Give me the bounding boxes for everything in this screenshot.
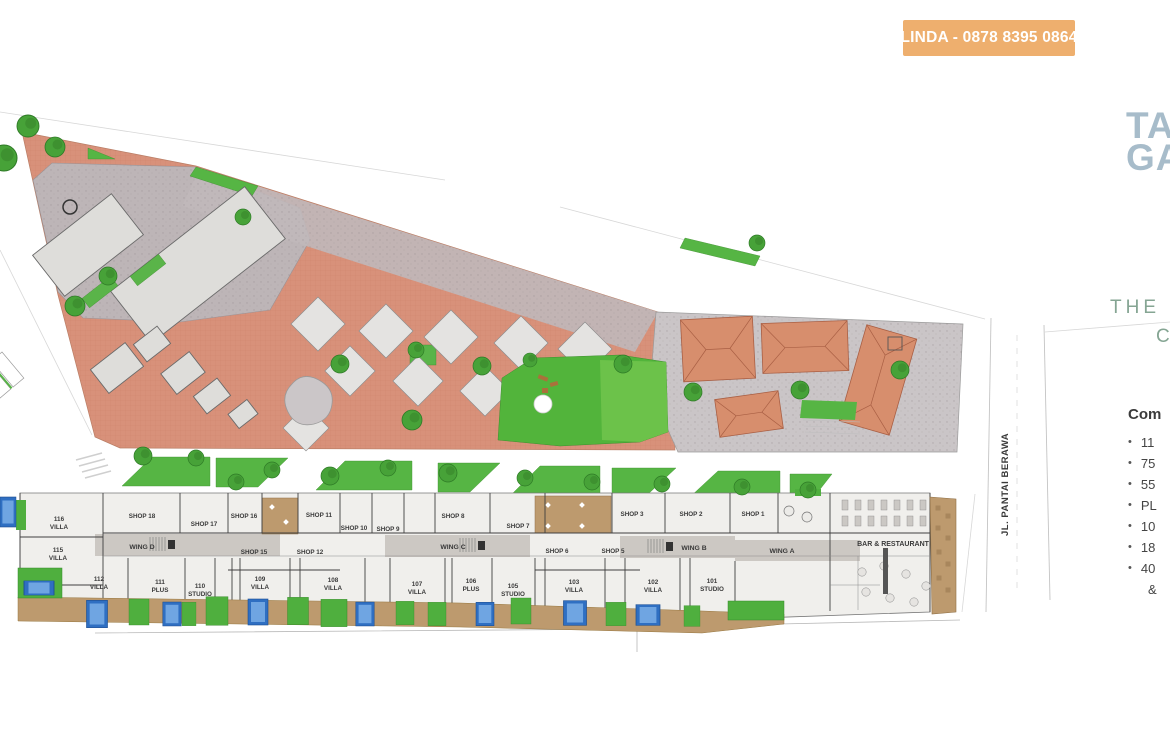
summary-item: 55	[1128, 474, 1161, 495]
unit-110-type: STUDIO	[188, 591, 212, 598]
unit-105-num: 105	[508, 583, 519, 590]
summary-list: Com 11 75 55 PL 10 18 40 &	[1128, 406, 1161, 600]
summary-item: 11	[1128, 432, 1161, 453]
unit-108-num: 108	[328, 577, 339, 584]
shop-9-label: SHOP 9	[377, 526, 400, 533]
contact-text: LINDA - 0878 8395 0864	[901, 29, 1078, 47]
logo-line2: GA	[1126, 142, 1170, 174]
unit-101-type: STUDIO	[700, 586, 724, 593]
summary-item: PL	[1128, 495, 1161, 516]
unit-107-num: 107	[412, 581, 423, 588]
shop-10-label: SHOP 10	[341, 525, 368, 532]
unit-102-num: 102	[648, 579, 659, 586]
restaurant-deck	[930, 497, 956, 614]
unit-116-num: 116	[54, 516, 65, 523]
wing-b-label: WING B	[681, 545, 706, 552]
unit-109-num: 109	[255, 576, 266, 583]
shop-1-label: SHOP 1	[742, 511, 765, 518]
wing-a-label: WING A	[769, 548, 794, 555]
contact-badge: LINDA - 0878 8395 0864	[903, 20, 1075, 56]
shop-6-label: SHOP 6	[546, 548, 569, 555]
summary-item: 40	[1128, 558, 1161, 579]
road-label: JL. PANTAI BERAWA	[1000, 433, 1011, 536]
brand-tagline: THE	[1110, 297, 1160, 319]
summary-item: 10	[1128, 516, 1161, 537]
shop-3-label: SHOP 3	[621, 511, 644, 518]
unit-115-num: 115	[53, 547, 64, 554]
wing-d-label: WING D	[129, 544, 154, 551]
unit-111-num: 111	[155, 579, 165, 586]
shop-18-label: SHOP 18	[129, 513, 156, 520]
lawn-circle	[534, 395, 552, 413]
shop-15-label: SHOP 15	[241, 549, 268, 556]
road-band-greens	[122, 457, 832, 497]
crosswalk	[76, 453, 111, 478]
unit-106-type: PLUS	[463, 586, 480, 593]
shop-11-label: SHOP 11	[306, 512, 333, 519]
unit-107-type: VILLA	[408, 589, 427, 596]
shop-7-label: SHOP 7	[507, 523, 530, 530]
flyer-page: JL. PANTAI BERAWA SHOP 18 SHOP 17 SHOP 1…	[0, 0, 1170, 738]
wing-c-label: WING C	[440, 544, 465, 551]
unit-103-num: 103	[569, 579, 580, 586]
unit-116-type: VILLA	[50, 524, 69, 531]
unit-111-type: PLUS	[152, 587, 169, 594]
side-road	[986, 318, 1050, 612]
summary-item: 18	[1128, 537, 1161, 558]
unit-109-type: VILLA	[251, 584, 270, 591]
site-plan: JL. PANTAI BERAWA SHOP 18 SHOP 17 SHOP 1…	[0, 0, 1170, 738]
shop-16-label: SHOP 16	[231, 513, 258, 520]
unit-106-num: 106	[466, 578, 477, 585]
brand-tagline-2: C	[1156, 326, 1170, 348]
shop-2-label: SHOP 2	[680, 511, 703, 518]
unit-112-num: 112	[94, 576, 105, 583]
unit-112-type: VILLA	[90, 584, 109, 591]
unit-108-type: VILLA	[324, 585, 343, 592]
bar-restaurant-label: BAR & RESTAURANT	[857, 541, 930, 548]
summary-heading: Com	[1128, 406, 1161, 423]
parking	[0, 352, 24, 431]
summary-item: 75	[1128, 453, 1161, 474]
unit-115-type: VILLA	[49, 555, 68, 562]
unit-101-num: 101	[707, 578, 718, 585]
shop-8-label: SHOP 8	[442, 513, 465, 520]
shop-12-label: SHOP 12	[297, 549, 324, 556]
summary-continuation: &	[1148, 579, 1161, 600]
unit-102-type: VILLA	[644, 587, 663, 594]
lawn	[498, 355, 668, 446]
unit-105-type: STUDIO	[501, 591, 525, 598]
shop-5-label: SHOP 5	[602, 548, 625, 555]
shop-17-label: SHOP 17	[191, 521, 218, 528]
brand-logo: TA GA	[1126, 110, 1170, 174]
unit-110-num: 110	[195, 583, 206, 590]
bar-counter	[883, 548, 888, 594]
unit-103-type: VILLA	[565, 587, 584, 594]
